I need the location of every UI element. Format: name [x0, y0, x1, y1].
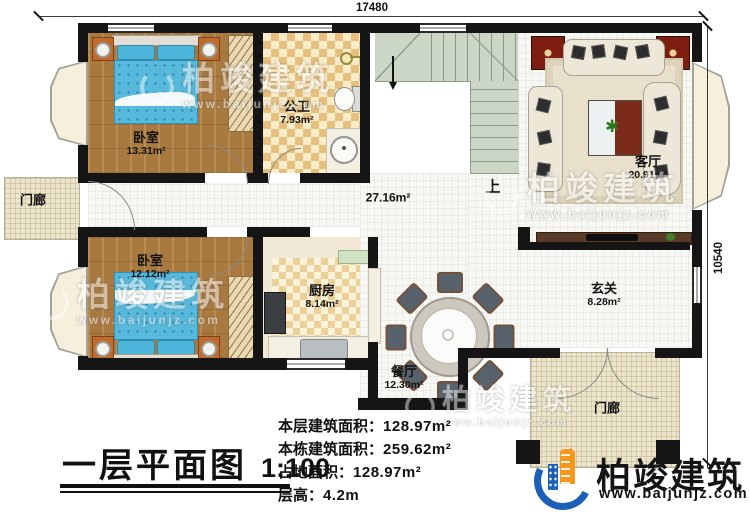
dining-table-center: [442, 329, 454, 341]
wall-dining-bottom: [358, 398, 468, 410]
wall-bed1-bath: [253, 23, 263, 183]
bed2-pillow-left: [117, 340, 155, 355]
bed1-nightstand-left: [92, 37, 114, 61]
info-line: 本栋建筑面积：259.62m²: [278, 438, 451, 461]
wall-bed2-kitchen: [253, 237, 263, 370]
floor-plan-sheet: ✱ 卧室 13: [0, 0, 750, 515]
label-bedroom2: 卧室 12.12m²: [130, 254, 169, 280]
stairs-cutline-left: [375, 33, 420, 81]
window-stairs: [420, 23, 466, 33]
wall-left-c: [78, 235, 88, 267]
kitchen-upper-counter: [338, 250, 370, 264]
dining-chair: [386, 325, 407, 351]
stairs-direction-arrow: [392, 56, 394, 82]
label-dining: 餐厅 12.30m²: [384, 365, 423, 391]
brand-logo-tower-blue: [548, 464, 558, 490]
dimension-right-value: 10540: [713, 236, 725, 280]
toilet-bowl: [334, 87, 355, 111]
bed1-pillow-right: [157, 45, 195, 60]
wall-kitchen-right-top: [368, 237, 378, 268]
brand-logo-tower-orange: [560, 446, 575, 484]
label-bedroom1: 卧室 13.31m²: [126, 131, 165, 157]
window-bedroom1: [108, 23, 154, 33]
bed1-pillow-left: [117, 45, 155, 60]
window-kitchen: [287, 358, 345, 370]
label-foyer: 玄关 8.28m²: [587, 282, 620, 308]
window-bathroom: [288, 23, 332, 33]
sheet-title-text: 一层平面图: [62, 438, 247, 487]
porch-pillar-left: [516, 440, 540, 464]
kitchen-stove: [264, 292, 286, 334]
info-line: 本层建筑面积：128.97m²: [278, 415, 451, 438]
label-porch-bottom: 门廊: [594, 402, 620, 417]
bedroom2-bay-window: [50, 265, 88, 358]
area-info-block: 本层建筑面积：128.97m² 本栋建筑面积：259.62m² 占地面积：128…: [278, 415, 451, 507]
dimension-top-value: 17480: [344, 2, 400, 14]
sofa-top: [563, 39, 665, 76]
stairs-direction-arrow-tip: [389, 82, 397, 90]
label-stairs-up: 上: [485, 180, 500, 197]
dining-chair: [437, 272, 463, 293]
label-hall-area: 27.16m²: [366, 191, 411, 204]
stairs-cutline-right: [470, 33, 518, 81]
wall-right-a: [692, 23, 702, 62]
kitchen-sink: [300, 339, 348, 360]
bed2-pillow-right: [157, 340, 195, 355]
wall-corridor-top-c: [300, 173, 370, 183]
dining-chair: [494, 325, 515, 351]
wall-corridor-top-b: [247, 173, 268, 183]
dimension-line-right: [707, 26, 708, 468]
dimension-line-top: [38, 16, 704, 17]
bed2-nightstand-right: [198, 336, 220, 360]
tv-icon: [586, 234, 638, 241]
wall-right-b: [692, 210, 702, 267]
bedroom1-wardrobe: [228, 35, 254, 132]
kitchen-pass-counter: [368, 268, 381, 344]
bedroom2-wardrobe: [228, 276, 254, 368]
bed2-nightstand-left: [92, 336, 114, 360]
wall-left-a: [78, 23, 88, 62]
plant-icon: ✱: [605, 117, 619, 137]
bedroom1-bay-window: [50, 60, 88, 147]
brand-url: www.baijunjz.com: [599, 486, 748, 502]
label-porch-left: 门廊: [20, 194, 46, 209]
wall-dining-right: [458, 348, 468, 410]
label-kitchen: 厨房 8.14m²: [305, 284, 338, 310]
stairs-treads-right: [470, 81, 518, 173]
wall-right-c: [692, 303, 702, 358]
wall-foyer-bottom-right: [655, 348, 697, 358]
wall-tv: [530, 242, 690, 250]
info-line: 层高：4.2m: [278, 484, 451, 507]
label-bathroom: 公卫 7.93m²: [280, 100, 313, 126]
title-underline-thick: [60, 484, 290, 488]
porch-left-floor: [4, 177, 80, 240]
living-bay-window: [692, 62, 730, 210]
sofa-left: [528, 86, 563, 192]
wall-bath-stair: [360, 23, 370, 183]
wall-foyer-bottom-left: [468, 348, 560, 358]
wall-corridor-bottom-b: [247, 227, 310, 237]
wall-tv-stub: [518, 227, 530, 250]
bed2-duvet: [114, 272, 198, 340]
info-line: 占地面积：128.97m²: [278, 461, 451, 484]
label-living: 客厅 20.91m²: [628, 155, 667, 181]
wall-top: [78, 23, 702, 33]
shower-fixture: [340, 52, 353, 65]
tv-plant-icon: [666, 233, 675, 241]
bathroom-washbasin: [330, 136, 358, 164]
wall-kitchen-right-bottom: [368, 342, 378, 358]
title-underline-thin: [60, 491, 290, 493]
bed1-nightstand-right: [198, 37, 220, 61]
window-foyer-right: [692, 267, 702, 303]
